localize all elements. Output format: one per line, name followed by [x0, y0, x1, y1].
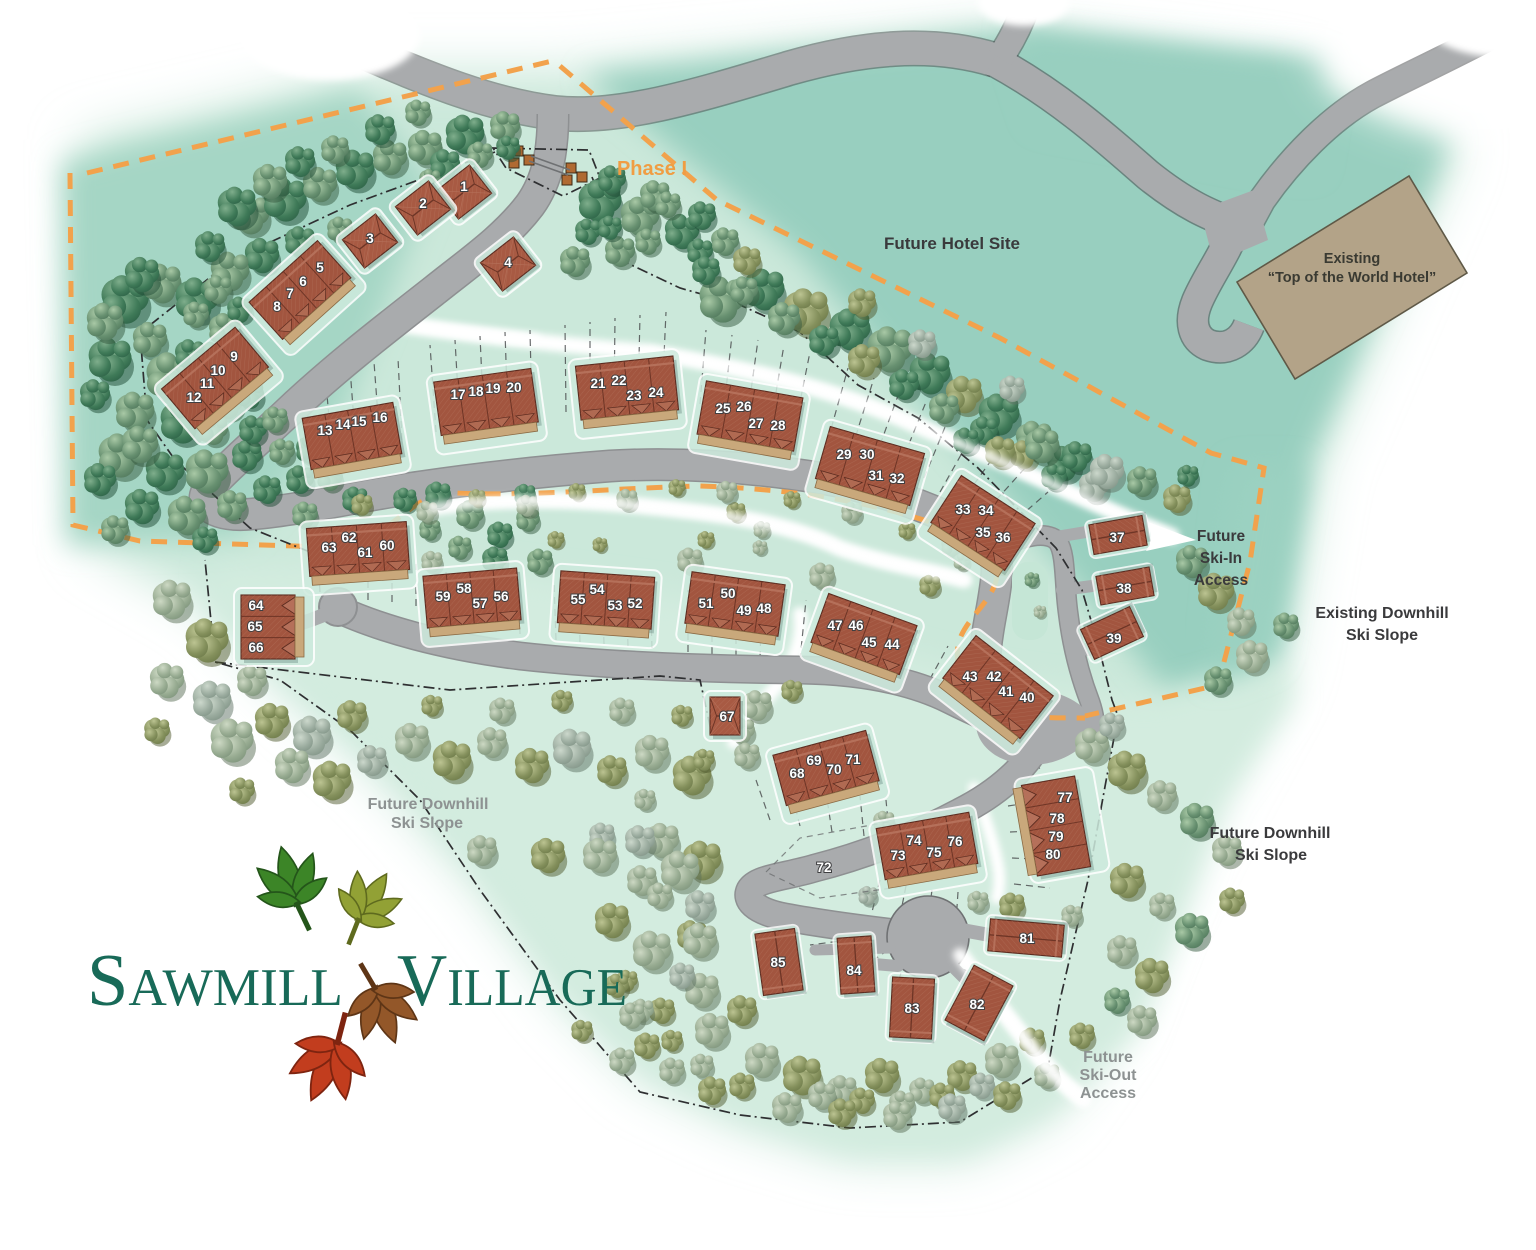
svg-text:Future Downhill: Future Downhill — [1210, 825, 1331, 842]
svg-text:38: 38 — [1116, 581, 1132, 596]
svg-text:46: 46 — [848, 618, 864, 633]
svg-text:31: 31 — [868, 468, 884, 483]
svg-text:84: 84 — [846, 963, 862, 978]
svg-text:11: 11 — [200, 376, 215, 391]
svg-text:29: 29 — [836, 447, 851, 462]
svg-text:62: 62 — [341, 530, 356, 545]
svg-text:42: 42 — [986, 669, 1001, 684]
svg-text:85: 85 — [770, 955, 786, 970]
svg-text:4: 4 — [504, 255, 512, 270]
svg-text:18: 18 — [468, 384, 484, 399]
svg-text:68: 68 — [789, 766, 805, 781]
svg-text:45: 45 — [861, 635, 877, 650]
svg-text:“Top of the World Hotel”: “Top of the World Hotel” — [1268, 270, 1437, 286]
svg-text:67: 67 — [719, 709, 734, 724]
svg-text:82: 82 — [969, 997, 984, 1012]
svg-text:22: 22 — [611, 373, 626, 388]
svg-text:28: 28 — [770, 418, 786, 433]
svg-text:25: 25 — [715, 401, 731, 416]
svg-text:51: 51 — [698, 596, 714, 611]
svg-text:78: 78 — [1049, 811, 1065, 826]
svg-text:17: 17 — [450, 387, 465, 402]
svg-text:64: 64 — [248, 598, 264, 613]
svg-text:60: 60 — [379, 538, 394, 553]
svg-text:59: 59 — [435, 589, 450, 604]
svg-text:21: 21 — [590, 376, 606, 391]
svg-text:Ski-In: Ski-In — [1200, 550, 1242, 567]
svg-text:77: 77 — [1057, 790, 1072, 805]
svg-text:75: 75 — [926, 845, 942, 860]
svg-text:9: 9 — [230, 349, 238, 364]
svg-text:Access: Access — [1080, 1085, 1136, 1102]
svg-text:81: 81 — [1019, 931, 1035, 946]
svg-text:72: 72 — [816, 860, 831, 875]
svg-text:Future Downhill: Future Downhill — [368, 796, 489, 813]
svg-text:56: 56 — [493, 589, 509, 604]
svg-text:Future Hotel Site: Future Hotel Site — [884, 234, 1020, 253]
svg-text:Ski-Out: Ski-Out — [1080, 1067, 1138, 1084]
svg-text:Existing: Existing — [1324, 251, 1380, 267]
svg-text:65: 65 — [247, 619, 263, 634]
svg-text:35: 35 — [975, 525, 991, 540]
svg-text:54: 54 — [589, 582, 605, 597]
svg-text:74: 74 — [906, 833, 922, 848]
svg-text:8: 8 — [273, 299, 281, 314]
svg-text:Ski Slope: Ski Slope — [1235, 847, 1307, 864]
svg-text:7: 7 — [286, 286, 294, 301]
svg-text:61: 61 — [357, 545, 373, 560]
svg-text:24: 24 — [648, 385, 664, 400]
svg-text:1: 1 — [460, 179, 468, 194]
svg-text:83: 83 — [904, 1001, 920, 1016]
svg-text:57: 57 — [472, 596, 487, 611]
svg-text:39: 39 — [1106, 631, 1121, 646]
svg-text:Future: Future — [1197, 528, 1246, 545]
svg-text:58: 58 — [456, 581, 472, 596]
svg-text:12: 12 — [186, 390, 201, 405]
svg-text:76: 76 — [947, 834, 963, 849]
svg-text:53: 53 — [607, 598, 623, 613]
svg-text:14: 14 — [335, 417, 351, 432]
svg-text:69: 69 — [806, 753, 821, 768]
svg-text:13: 13 — [317, 423, 333, 438]
svg-text:41: 41 — [998, 684, 1014, 699]
svg-text:71: 71 — [845, 752, 861, 767]
svg-text:44: 44 — [884, 637, 900, 652]
svg-text:26: 26 — [736, 399, 752, 414]
svg-text:30: 30 — [859, 447, 874, 462]
svg-text:36: 36 — [995, 530, 1011, 545]
svg-text:Phase I: Phase I — [617, 158, 687, 180]
svg-text:37: 37 — [1109, 530, 1124, 545]
svg-text:Ski Slope: Ski Slope — [1346, 627, 1418, 644]
svg-text:Future: Future — [1083, 1049, 1133, 1066]
svg-text:43: 43 — [962, 669, 978, 684]
svg-text:80: 80 — [1045, 847, 1060, 862]
svg-text:3: 3 — [366, 231, 374, 246]
svg-text:33: 33 — [955, 502, 971, 517]
svg-text:Existing Downhill: Existing Downhill — [1315, 605, 1448, 622]
svg-text:79: 79 — [1048, 829, 1063, 844]
svg-text:5: 5 — [316, 260, 324, 275]
svg-text:32: 32 — [889, 471, 904, 486]
svg-text:50: 50 — [720, 586, 735, 601]
svg-text:52: 52 — [627, 596, 642, 611]
svg-text:66: 66 — [248, 640, 264, 655]
svg-text:23: 23 — [626, 388, 642, 403]
svg-text:19: 19 — [485, 381, 500, 396]
svg-text:49: 49 — [736, 603, 751, 618]
svg-text:63: 63 — [321, 540, 337, 555]
svg-text:34: 34 — [978, 503, 994, 518]
svg-text:55: 55 — [570, 592, 586, 607]
svg-text:47: 47 — [827, 618, 842, 633]
svg-text:70: 70 — [826, 762, 841, 777]
svg-text:16: 16 — [372, 410, 388, 425]
svg-text:15: 15 — [351, 414, 367, 429]
svg-text:Access: Access — [1194, 572, 1248, 589]
svg-text:2: 2 — [419, 196, 427, 211]
svg-text:Ski Slope: Ski Slope — [391, 815, 463, 832]
svg-text:40: 40 — [1019, 690, 1034, 705]
svg-text:27: 27 — [748, 416, 763, 431]
svg-text:20: 20 — [506, 380, 521, 395]
svg-text:73: 73 — [890, 848, 906, 863]
svg-text:48: 48 — [756, 601, 772, 616]
svg-text:6: 6 — [299, 274, 307, 289]
